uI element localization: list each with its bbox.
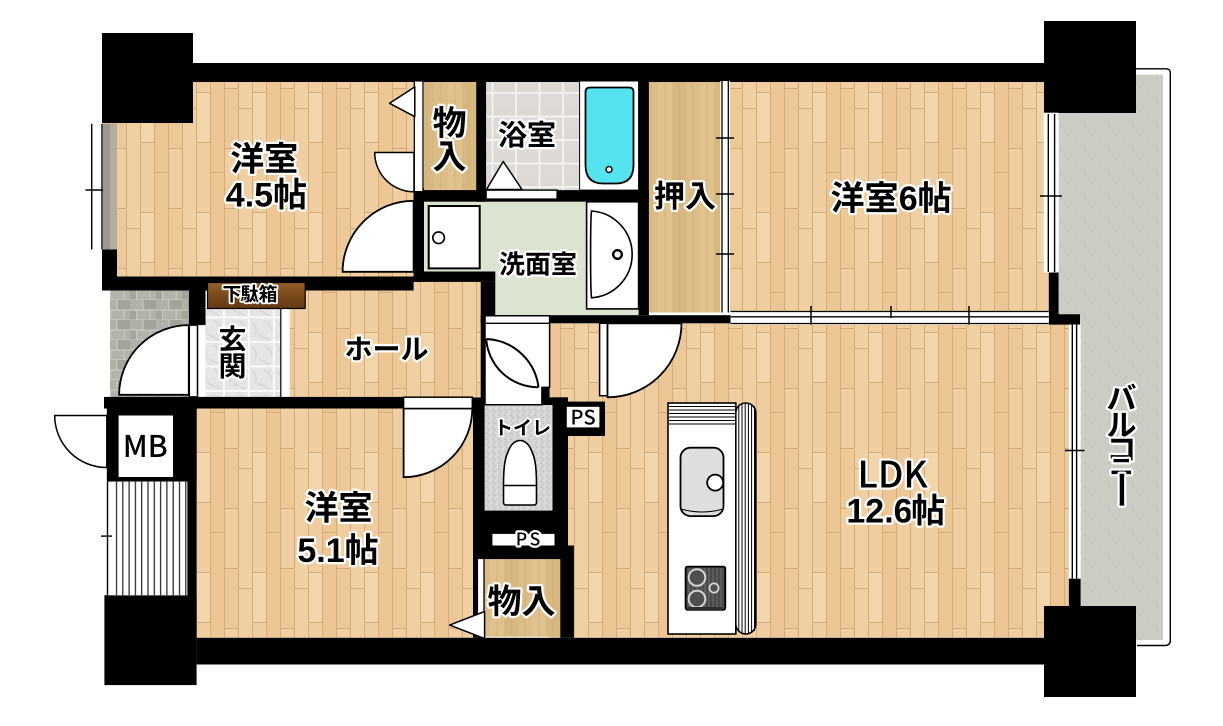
svg-text:4.5: 4.5	[226, 177, 273, 215]
svg-text:12.6: 12.6	[846, 493, 912, 531]
svg-text:5.1: 5.1	[297, 532, 344, 570]
svg-text:6: 6	[899, 180, 918, 218]
